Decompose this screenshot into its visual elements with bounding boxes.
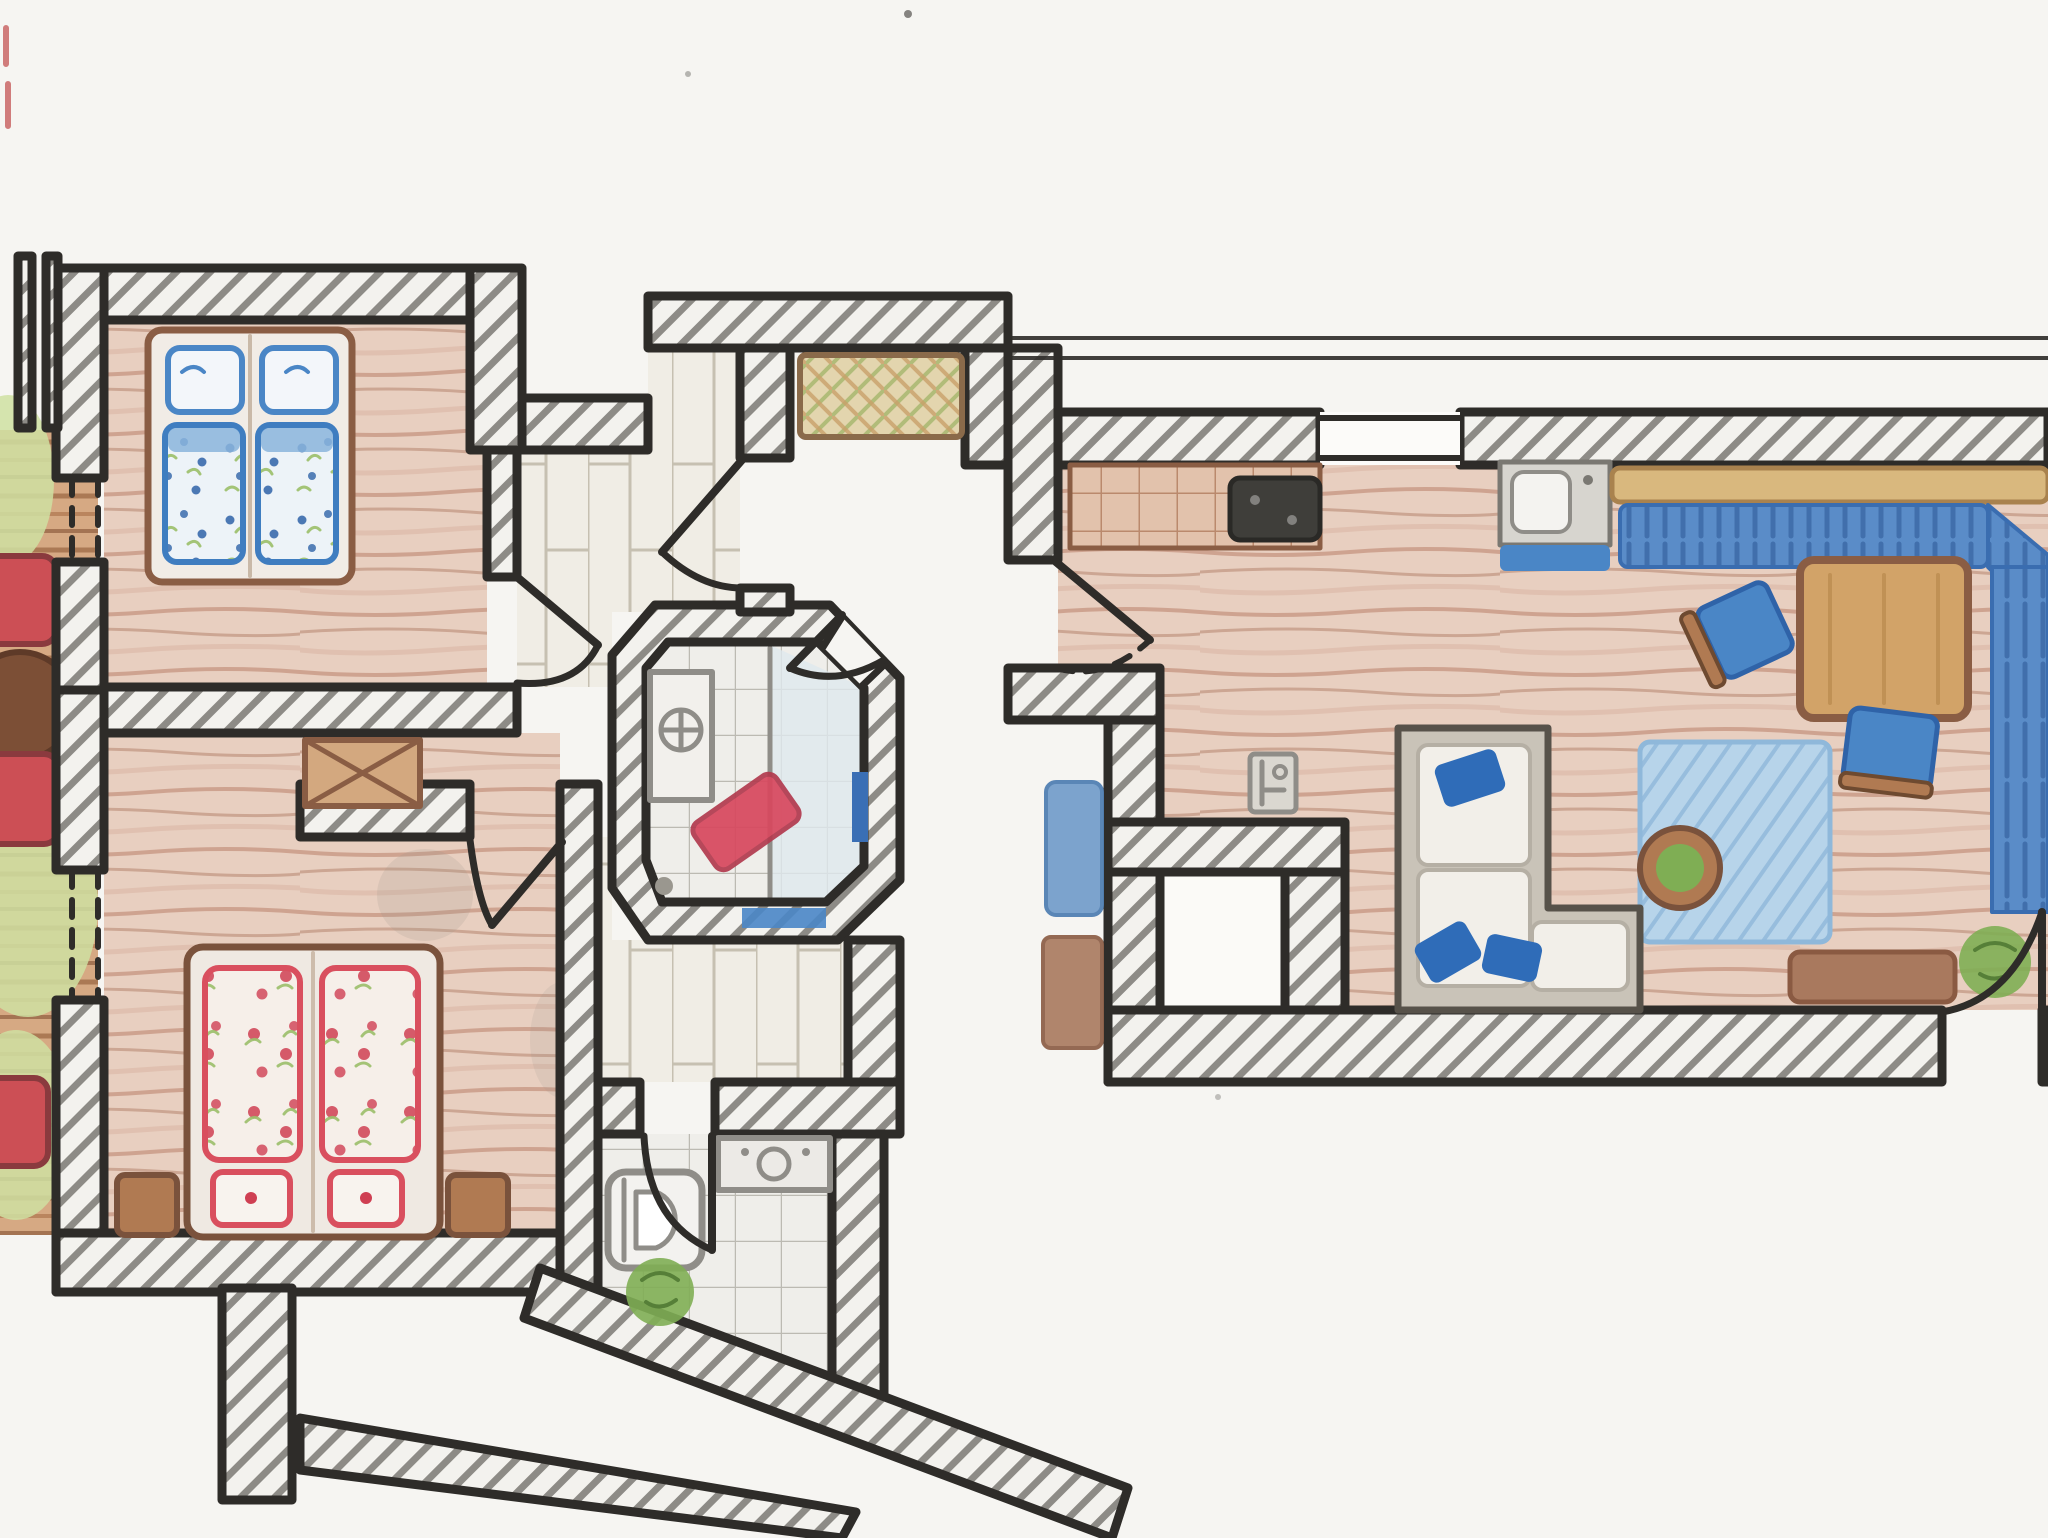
sink-basin (1512, 472, 1570, 532)
wall-wc-east (832, 1134, 884, 1395)
sofa-cushion (1532, 922, 1628, 990)
pillow-blue (262, 348, 336, 412)
wall-bedroom1-north (104, 268, 495, 320)
wall-entry-left-unit (740, 348, 790, 458)
wall-right-unit-west (1008, 348, 1058, 560)
wall-wc-north-right (715, 1082, 900, 1134)
wall-vestibule-north (648, 296, 1008, 348)
wall-connector (965, 348, 1008, 465)
lowboard (1790, 952, 1955, 1002)
wall-right-unit-jog (1008, 668, 1160, 720)
blue-bath-mat (742, 908, 826, 928)
nightstand (448, 1175, 508, 1235)
nightstand (117, 1175, 177, 1235)
shower-bathroom (612, 605, 900, 940)
closet-floor (1160, 872, 1285, 1010)
wall-west-c (56, 690, 104, 870)
wall-stub-cut (46, 256, 58, 428)
hallway-floor (598, 940, 848, 1082)
pencil-smudge (377, 849, 473, 941)
cooktop (1230, 478, 1320, 540)
duvet-fold (261, 428, 333, 452)
sink-front-blue (1500, 545, 1610, 571)
duvet-red (322, 968, 418, 1160)
wall-pier (222, 1288, 292, 1500)
window-north (1320, 412, 1460, 465)
tap-dot (802, 1148, 810, 1156)
duvet-fold (168, 428, 240, 452)
floor-plan-sketch (0, 0, 2048, 1538)
wall-closet-north (1108, 822, 1345, 872)
tap-dot (741, 1148, 749, 1156)
wall-hall-east (848, 940, 900, 1082)
wall-west-b (56, 562, 104, 690)
cooktop-burner (1250, 495, 1260, 505)
wall-bedroom1-east (487, 450, 517, 577)
wall-nook (522, 398, 648, 450)
garden-chair (0, 556, 56, 644)
wall-right-unit-south-stub (2042, 1010, 2048, 1082)
hall-mat (1043, 937, 1102, 1048)
shower-area (770, 645, 864, 902)
hall-bench-cushion (1046, 782, 1102, 915)
corner-bench-east (1992, 567, 2048, 912)
wc-plant (626, 1258, 694, 1326)
speck (685, 71, 691, 77)
wall-bedroom-divider-upper (104, 687, 517, 733)
duvet-red (205, 968, 300, 1160)
wall-right-unit-north-west (1058, 412, 1320, 465)
speck (904, 10, 912, 18)
sink-tap (1583, 475, 1593, 485)
wall-stub-cut (18, 256, 32, 428)
wall-bedroom2-south (56, 1233, 560, 1292)
pillow-flower (245, 1192, 257, 1204)
drain-dot (655, 877, 673, 895)
pillow-flower (360, 1192, 372, 1204)
garden-chair (0, 1078, 48, 1166)
radiator (1250, 754, 1296, 812)
vanity-counter (718, 1138, 830, 1190)
wall-bedroom2-east (560, 784, 598, 1310)
dining-chair (1839, 707, 1940, 799)
wall-right-unit-north-east (1460, 412, 2048, 465)
garden-chair (0, 754, 58, 844)
blue-towel (852, 772, 868, 842)
floor-plan-drawing (0, 0, 2048, 1538)
wall-right-unit-south (1108, 1010, 1942, 1082)
wall-jog (470, 268, 522, 450)
potted-plant (1656, 844, 1704, 892)
cooktop-burner (1287, 515, 1297, 525)
pillow-blue (168, 348, 242, 412)
wall-closet-east (1285, 872, 1345, 1010)
wall-entry-left-unit-stub (740, 588, 790, 612)
doormat (800, 355, 962, 437)
speck (1215, 1094, 1221, 1100)
wall-west-a (56, 268, 104, 478)
wall-wc-north-left (598, 1082, 640, 1134)
bench-backrest (1612, 468, 2048, 502)
